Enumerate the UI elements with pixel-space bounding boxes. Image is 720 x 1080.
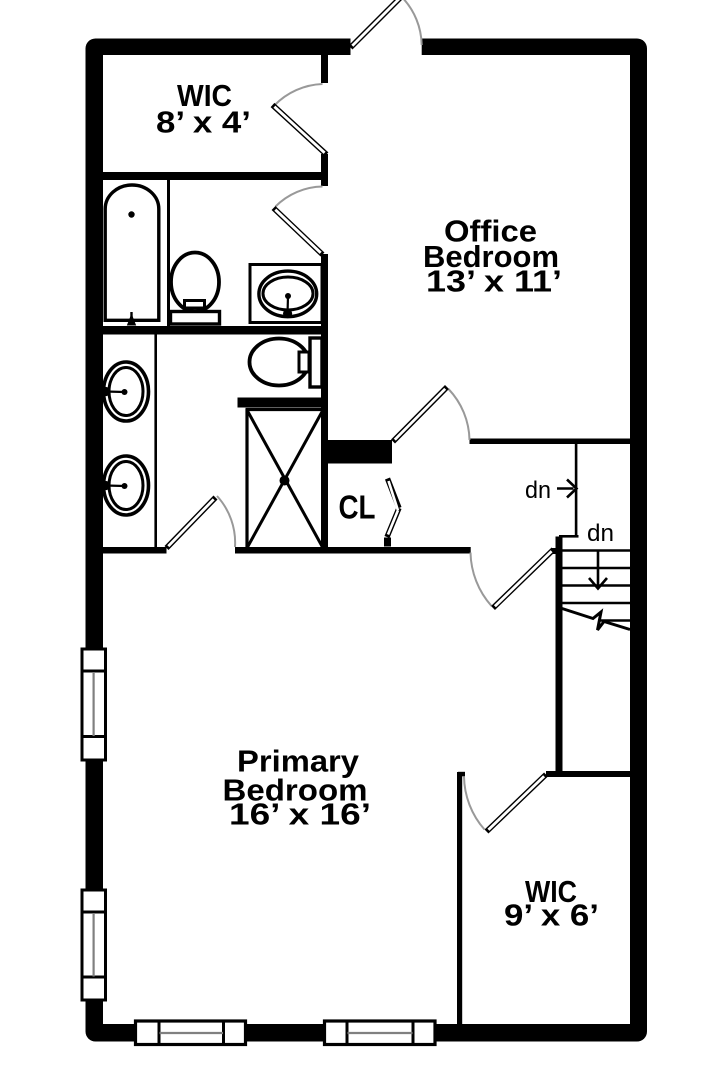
svg-text:13’ x 11’: 13’ x 11’: [426, 265, 562, 299]
svg-text:dn: dn: [525, 477, 551, 504]
svg-text:9’ x 6’: 9’ x 6’: [504, 899, 599, 933]
svg-text:8’ x 4’: 8’ x 4’: [156, 106, 251, 140]
svg-text:CL: CL: [339, 489, 376, 526]
svg-text:dn: dn: [587, 520, 614, 547]
svg-text:16’ x 16’: 16’ x 16’: [229, 798, 371, 832]
